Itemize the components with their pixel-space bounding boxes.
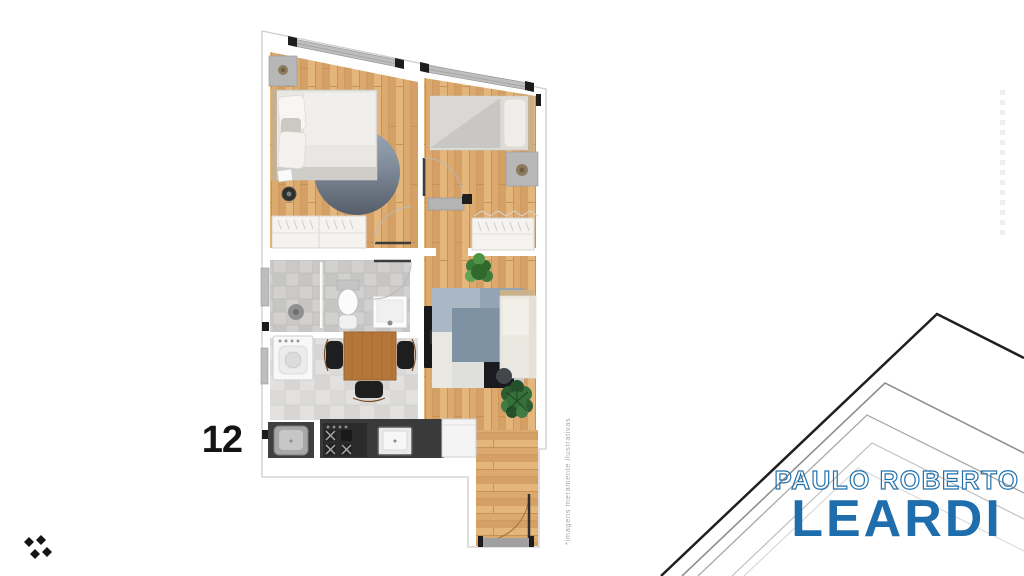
hall-shelf [428, 198, 464, 210]
wall-stub [529, 536, 534, 547]
sofa [500, 290, 536, 378]
four-diamonds-icon [18, 533, 60, 565]
service-window [261, 348, 268, 384]
kitchen-sink [378, 427, 412, 455]
double-bed [271, 89, 377, 181]
shower-partition [320, 262, 323, 328]
single-bed [430, 96, 534, 152]
disclaimer-text: *imagens meramente ilustrativas [563, 418, 572, 545]
faucet [388, 321, 393, 326]
wall-stub [536, 94, 541, 106]
bathroom-window [261, 268, 269, 306]
wall-stub [262, 322, 269, 331]
page: 12 *imagens meramente ilustrativas PAULO… [0, 0, 1024, 576]
kitchen [262, 419, 476, 458]
entry-threshold [482, 538, 530, 547]
notepad [277, 169, 292, 182]
pillow [278, 131, 306, 169]
toilet [337, 280, 359, 329]
stove [323, 423, 367, 457]
washing-machine [273, 336, 313, 380]
brand-logo: PAULO ROBERTO LEARDI [772, 466, 1022, 544]
dining-table [344, 332, 396, 380]
wardrobe [272, 216, 366, 248]
unit-number: 12 [180, 421, 242, 459]
brand-logo-line2: LEARDI [772, 495, 1022, 544]
laundry-sink-counter [268, 422, 314, 458]
pillow [504, 99, 526, 147]
dining-chair [397, 339, 416, 371]
kitchen-counter [320, 419, 444, 458]
dining-chair [325, 339, 344, 371]
wall-stub [462, 194, 472, 204]
wall-stub [478, 536, 483, 547]
fridge [442, 419, 476, 457]
bathroom-sink [373, 296, 407, 328]
edge-watermark [1000, 90, 1005, 236]
side-pouf [496, 368, 512, 384]
